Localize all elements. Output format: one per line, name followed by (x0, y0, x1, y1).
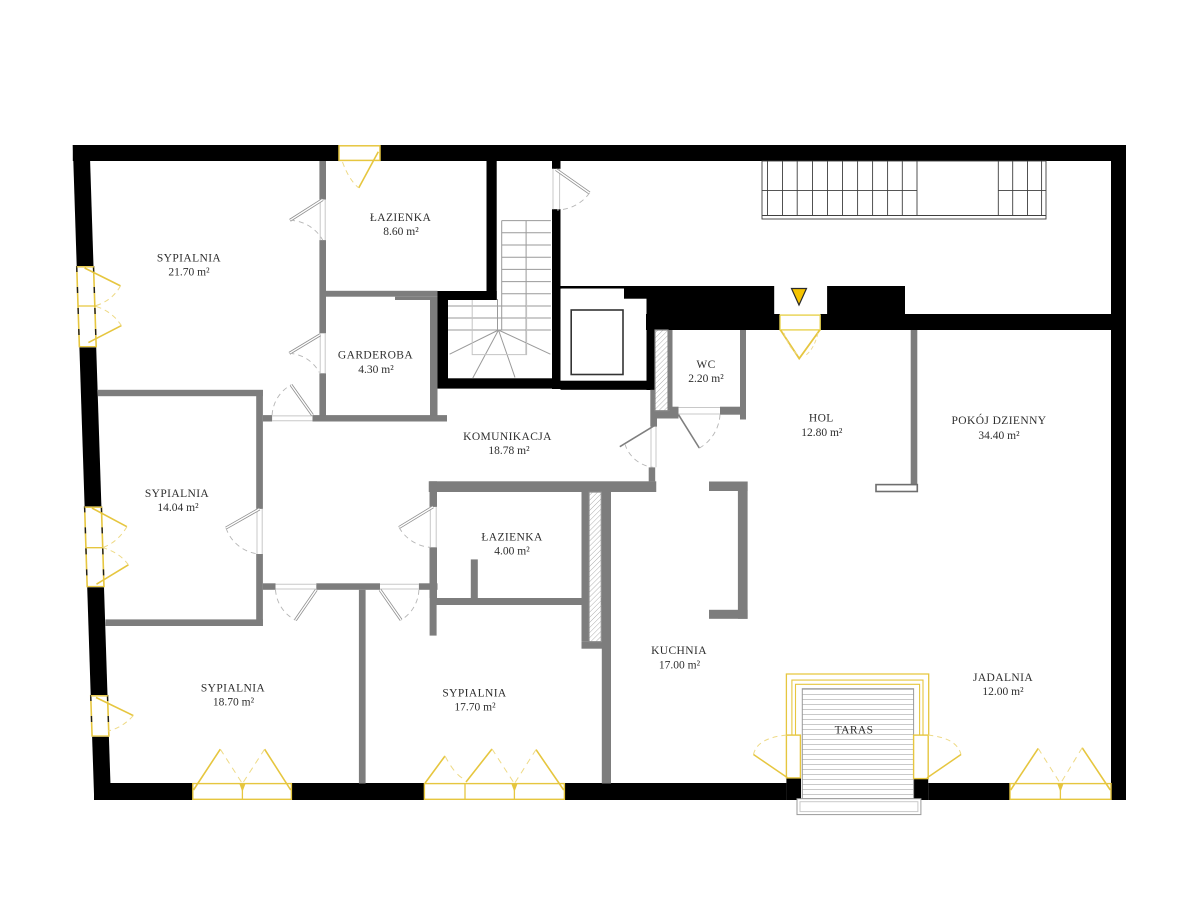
svg-text:34.40 m²: 34.40 m² (978, 430, 1020, 442)
svg-text:SYPIALNIA: SYPIALNIA (442, 688, 507, 700)
svg-text:TARAS: TARAS (835, 725, 874, 737)
svg-text:21.70 m²: 21.70 m² (168, 267, 210, 279)
svg-text:JADALNIA: JADALNIA (973, 672, 1033, 684)
svg-text:KUCHNIA: KUCHNIA (651, 645, 707, 657)
svg-text:ŁAZIENKA: ŁAZIENKA (481, 532, 543, 544)
svg-text:ŁAZIENKA: ŁAZIENKA (370, 212, 432, 224)
svg-text:WC: WC (696, 359, 715, 371)
svg-text:4.30 m²: 4.30 m² (358, 364, 394, 376)
svg-text:SYPIALNIA: SYPIALNIA (145, 488, 210, 500)
svg-text:17.00 m²: 17.00 m² (659, 660, 701, 672)
svg-text:4.00 m²: 4.00 m² (494, 546, 530, 558)
svg-text:12.00 m²: 12.00 m² (982, 686, 1024, 698)
svg-text:14.04 m²: 14.04 m² (157, 502, 199, 514)
svg-text:2.20 m²: 2.20 m² (688, 373, 724, 385)
svg-text:HOL: HOL (809, 413, 834, 425)
svg-text:POKÓJ DZIENNY: POKÓJ DZIENNY (952, 413, 1047, 427)
svg-text:GARDEROBA: GARDEROBA (338, 350, 413, 362)
svg-text:18.78 m²: 18.78 m² (488, 445, 530, 457)
svg-text:12.80 m²: 12.80 m² (801, 427, 843, 439)
svg-text:SYPIALNIA: SYPIALNIA (201, 683, 266, 695)
svg-text:17.70 m²: 17.70 m² (454, 702, 496, 714)
svg-text:18.70 m²: 18.70 m² (213, 697, 255, 709)
svg-text:SYPIALNIA: SYPIALNIA (157, 253, 222, 265)
svg-text:8.60 m²: 8.60 m² (383, 226, 419, 238)
svg-text:KOMUNIKACJA: KOMUNIKACJA (463, 431, 552, 443)
